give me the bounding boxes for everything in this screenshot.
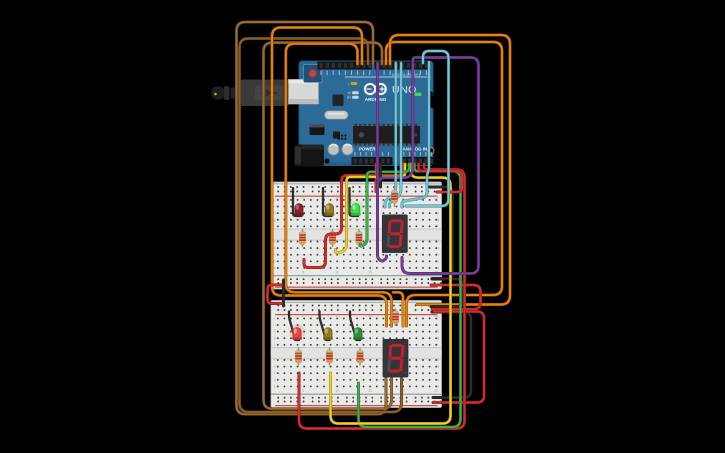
svg-text:15: 15 <box>368 314 372 318</box>
svg-text:ARDUINO: ARDUINO <box>365 97 387 102</box>
svg-text:10: 10 <box>335 270 339 274</box>
svg-text:5: 5 <box>302 195 304 199</box>
svg-text:TX: TX <box>347 91 351 95</box>
svg-text:e: e <box>274 240 276 244</box>
svg-text:b: b <box>437 378 439 382</box>
svg-text:d: d <box>274 246 276 250</box>
svg-text:a: a <box>274 266 276 270</box>
svg-text:POWER: POWER <box>359 147 376 152</box>
svg-text:a: a <box>437 266 439 270</box>
svg-text:b: b <box>274 378 276 382</box>
svg-text:f: f <box>274 343 275 347</box>
svg-text:h: h <box>274 211 276 215</box>
svg-text:e: e <box>437 358 439 362</box>
svg-text:15: 15 <box>368 270 372 274</box>
svg-text:25: 25 <box>434 314 438 318</box>
svg-text:5: 5 <box>302 314 304 318</box>
svg-text:10: 10 <box>335 314 339 318</box>
svg-text:5: 5 <box>302 389 304 393</box>
svg-text:g: g <box>437 336 439 340</box>
svg-text:25: 25 <box>434 389 438 393</box>
svg-text:g: g <box>274 336 276 340</box>
svg-text:e: e <box>437 240 439 244</box>
svg-text:b: b <box>437 259 439 263</box>
svg-text:15: 15 <box>368 389 372 393</box>
svg-text:d: d <box>437 365 439 369</box>
svg-text:f: f <box>274 224 275 228</box>
svg-text:h: h <box>437 330 439 334</box>
svg-text:h: h <box>274 330 276 334</box>
svg-text:10: 10 <box>335 389 339 393</box>
svg-text:j: j <box>273 316 275 320</box>
svg-text:25: 25 <box>434 195 438 199</box>
svg-text:10: 10 <box>335 195 339 199</box>
svg-text:5: 5 <box>302 270 304 274</box>
svg-text:g: g <box>437 218 439 222</box>
svg-text:b: b <box>274 259 276 263</box>
svg-text:a: a <box>274 384 276 388</box>
svg-text:e: e <box>274 358 276 362</box>
svg-text:f: f <box>437 343 438 347</box>
svg-text:RX: RX <box>347 96 351 100</box>
svg-text:15: 15 <box>368 195 372 199</box>
svg-text:f: f <box>437 224 438 228</box>
svg-text:g: g <box>274 218 276 222</box>
svg-text:ANALOG IN: ANALOG IN <box>403 147 428 152</box>
svg-text:d: d <box>437 246 439 250</box>
svg-text:d: d <box>274 365 276 369</box>
svg-text:20: 20 <box>401 195 405 199</box>
svg-text:h: h <box>437 211 439 215</box>
svg-text:a: a <box>437 384 439 388</box>
